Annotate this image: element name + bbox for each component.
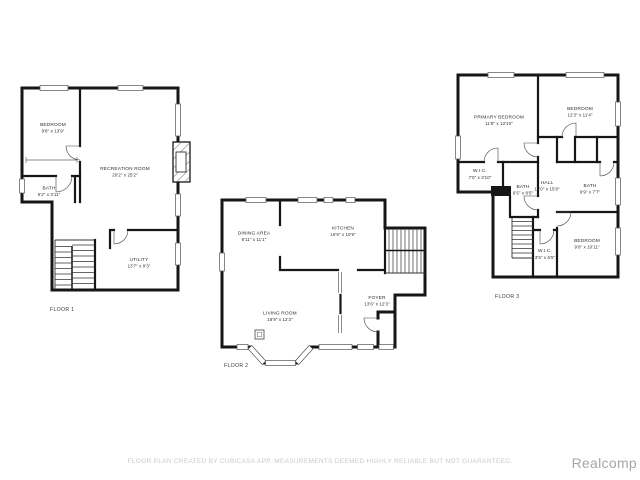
floor2-fixture xyxy=(255,330,264,339)
floor1-bedroom-name: BEDROOM xyxy=(40,122,66,128)
floor2-windows xyxy=(220,198,394,366)
floor2-stairs xyxy=(385,228,425,273)
entry-door xyxy=(358,345,374,350)
floor2-doors xyxy=(364,318,378,332)
floor1-doors xyxy=(56,146,128,244)
floor1-bath-dims: 6'2" x 3'11" xyxy=(38,192,61,197)
floor3-wic-bottom-dims: 3'5" x 6'5" xyxy=(535,255,556,260)
floor1-utility-dims: 13'7" x 9'3" xyxy=(128,264,151,269)
floor3-bath-center-name: BATH xyxy=(516,184,529,190)
floor1-bedroom-dims: 9'8" x 13'9" xyxy=(42,129,65,134)
realcomp-logo: Realcomp xyxy=(572,455,637,471)
floor3-hall-name: HALL xyxy=(541,180,554,186)
floor3-hall-dims: 10'0" x 15'8" xyxy=(534,187,560,192)
floor2-dining-name: DINING AREA xyxy=(238,231,271,237)
floor2-kitchen-dims: 16'9" x 10'9" xyxy=(330,232,356,237)
floor1-recreation-name: RECREATION ROOM xyxy=(100,166,150,172)
floor3-bath-right-dims: 9'9" x 7'7" xyxy=(580,190,601,195)
floor1-plan: BEDROOM 9'8" x 13'9" RECREATION ROOM 20'… xyxy=(20,86,191,314)
floor1-recreation-dims: 20'2" x 25'2" xyxy=(112,173,138,178)
floor1-title: FLOOR 1 xyxy=(50,307,74,313)
porch-door xyxy=(379,345,394,350)
floor1-utility-name: UTILITY xyxy=(130,257,150,263)
floor2-foyer-name: FOYER xyxy=(368,295,386,301)
floor3-bath-center-dims: 6'5" x 8'5" xyxy=(513,191,534,196)
floor3-primary-name: PRIMARY BEDROOM xyxy=(474,115,524,121)
floor2-living-name: LIVING ROOM xyxy=(263,311,297,317)
floor1-chimney xyxy=(173,142,190,182)
floor2-dining-dims: 8'11" x 11'1" xyxy=(242,237,267,242)
disclaimer-text: FLOOR PLAN CREATED BY CUBICASA APP. MEAS… xyxy=(0,458,640,465)
floor3-bedroom-tr-name: BEDROOM xyxy=(567,106,593,112)
floor3-bedroom-br-dims: 9'9" x 10'11" xyxy=(574,245,599,250)
floor3-stairs xyxy=(512,218,533,258)
floor3-wic-bottom-name: W.I.C. xyxy=(538,248,552,254)
floor2-plan: DINING AREA 8'11" x 11'1" KITCHEN 16'9" … xyxy=(220,198,426,370)
floor3-wic-left-dims: 7'0" x 3'10" xyxy=(469,175,492,180)
floor1-bath-name: BATH xyxy=(42,186,55,192)
floorplan-svg: BEDROOM 9'8" x 13'9" RECREATION ROOM 20'… xyxy=(0,0,640,480)
floor3-bedroom-br-name: BEDROOM xyxy=(574,238,600,244)
floor2-foyer-dims: 13'6" x 12'3" xyxy=(364,302,390,307)
floor2-kitchen-name: KITCHEN xyxy=(332,226,354,232)
floor2-living-dims: 18'9" x 12'3" xyxy=(267,317,293,322)
floor3-bedroom-tr-dims: 12'3" x 11'4" xyxy=(567,113,592,118)
floor3-primary-dims: 11'8" x 13'10" xyxy=(485,121,513,126)
floor3-title: FLOOR 3 xyxy=(495,294,519,300)
floor3-wic-left-name: W.I.C. xyxy=(473,168,487,174)
wall-chunk xyxy=(491,186,511,196)
floorplan-canvas: BEDROOM 9'8" x 13'9" RECREATION ROOM 20'… xyxy=(0,0,640,480)
floor2-walls xyxy=(222,200,425,363)
floor3-bath-right-name: BATH xyxy=(583,183,596,189)
floor1-stairs xyxy=(55,240,95,290)
floor3-labels: PRIMARY BEDROOM 11'8" x 13'10" BEDROOM 1… xyxy=(469,106,601,300)
floor2-title: FLOOR 2 xyxy=(224,363,248,369)
floor3-plan: PRIMARY BEDROOM 11'8" x 13'10" BEDROOM 1… xyxy=(456,73,621,301)
